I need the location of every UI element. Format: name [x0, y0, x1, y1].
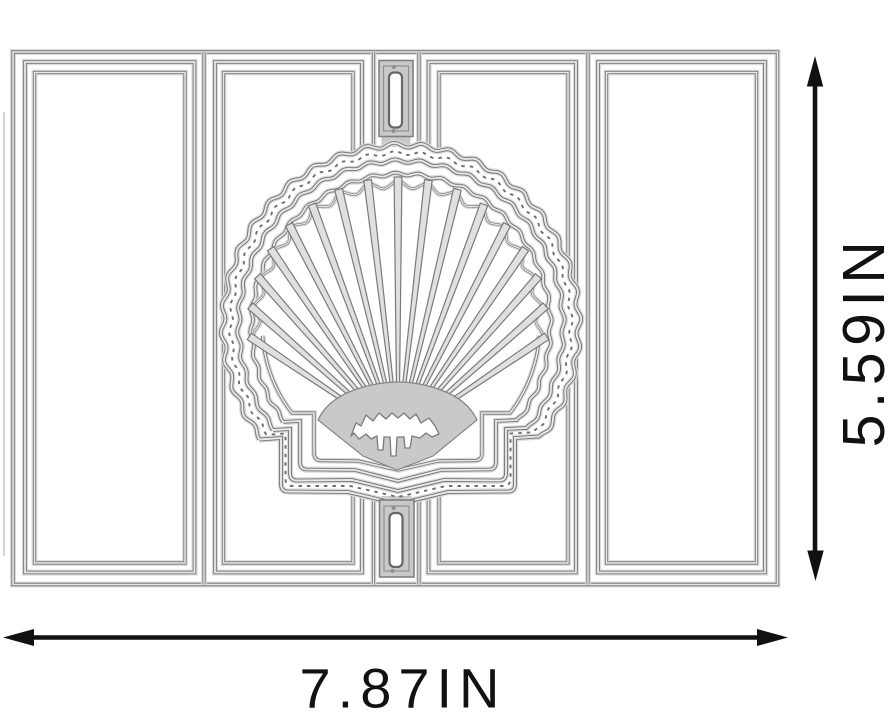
svg-text:5.59IN: 5.59IN: [831, 235, 888, 448]
svg-text:7.87IN: 7.87IN: [300, 657, 507, 713]
